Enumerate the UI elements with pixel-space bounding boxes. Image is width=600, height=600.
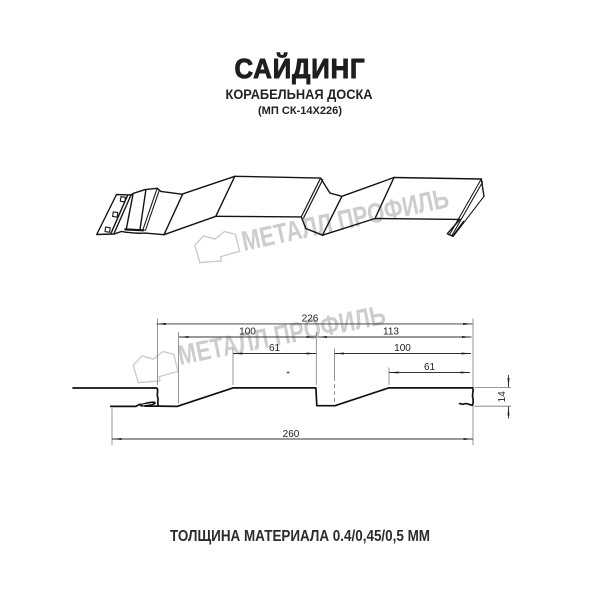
svg-text:МЕТАЛЛ ПРОФИЛЬ: МЕТАЛЛ ПРОФИЛЬ <box>175 299 388 371</box>
svg-text:61: 61 <box>424 362 436 373</box>
svg-text:(МП СК-14Х226): (МП СК-14Х226) <box>258 105 342 117</box>
svg-text:САЙДИНГ: САЙДИНГ <box>235 52 366 84</box>
svg-text:100: 100 <box>394 343 411 354</box>
svg-text:14: 14 <box>497 391 508 403</box>
svg-text:113: 113 <box>383 327 399 338</box>
svg-text:100: 100 <box>239 327 256 338</box>
svg-text:61: 61 <box>269 343 281 354</box>
svg-text:226: 226 <box>302 314 319 325</box>
svg-text:ТОЛЩИНА МАТЕРИАЛА 0.4/0,45/0,5: ТОЛЩИНА МАТЕРИАЛА 0.4/0,45/0,5 ММ <box>170 528 430 545</box>
svg-text:260: 260 <box>283 429 300 440</box>
svg-text:КОРАБЕЛЬНАЯ ДОСКА: КОРАБЕЛЬНАЯ ДОСКА <box>226 87 373 102</box>
